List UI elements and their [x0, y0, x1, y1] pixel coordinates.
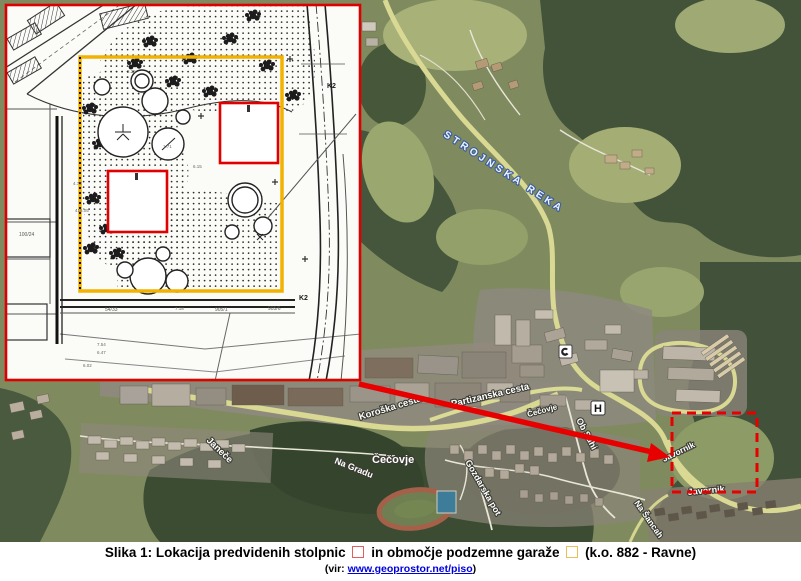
source-prefix: (vir: [325, 563, 345, 575]
svg-text:6.47: 6.47 [97, 350, 106, 355]
source-link[interactable]: www.geoprostor.net/piso [348, 563, 473, 575]
caption-line-1: Slika 1: Lokacija predvidenih stolpnic i… [0, 543, 801, 563]
caption-suffix: (k.o. 882 - Ravne) [585, 545, 696, 560]
parcel-54-33: 54/33 [105, 307, 118, 313]
svg-text:7.54: 7.54 [97, 342, 106, 347]
svg-text:416.05: 416.05 [75, 208, 89, 213]
poi-marker-icon [559, 345, 572, 358]
hospital-marker: H [591, 401, 605, 415]
svg-text:2.25: 2.25 [127, 69, 136, 74]
district-label-cecovje: Čečovje [372, 453, 414, 466]
map-canvas: STROJNSKA REKA Koroška cesta Partizanska… [0, 0, 801, 542]
figure-caption: Slika 1: Lokacija predvidenih stolpnic i… [0, 542, 801, 576]
k2-upper: K2 [327, 83, 336, 90]
svg-text:6.15: 6.15 [193, 164, 202, 169]
legend-swatch-garage [566, 546, 578, 558]
figure-slika-1: STROJNSKA REKA Koroška cesta Partizanska… [0, 0, 801, 581]
svg-text:6.02: 6.02 [83, 363, 92, 368]
legend-swatch-towers [352, 546, 364, 558]
svg-text:4.73: 4.73 [73, 181, 82, 186]
parcel-905-1: 905/1 [215, 307, 228, 313]
satellite-map: STROJNSKA REKA Koroška cesta Partizanska… [0, 0, 801, 542]
inset-site-plan: K2 K2 54/33 905/1 905/6 100/24 2.25 1.71… [5, 2, 361, 381]
source-suffix: ) [473, 563, 477, 575]
caption-prefix: Slika 1: Lokacija predvidenih stolpnic [105, 545, 346, 560]
caption-mid: in območje podzemne garaže [371, 545, 559, 560]
swimming-pool [437, 491, 456, 513]
tower-2-outline [108, 171, 167, 232]
svg-text:7.18: 7.18 [175, 306, 184, 311]
caption-line-2: (vir: www.geoprostor.net/piso) [0, 563, 801, 576]
k2-lower: K2 [299, 295, 308, 302]
parcel-905-6: 905/6 [268, 306, 281, 312]
hospital-marker-label: H [594, 403, 602, 415]
svg-text:1.71: 1.71 [163, 144, 172, 149]
parcel-100-24: 100/24 [19, 232, 35, 238]
